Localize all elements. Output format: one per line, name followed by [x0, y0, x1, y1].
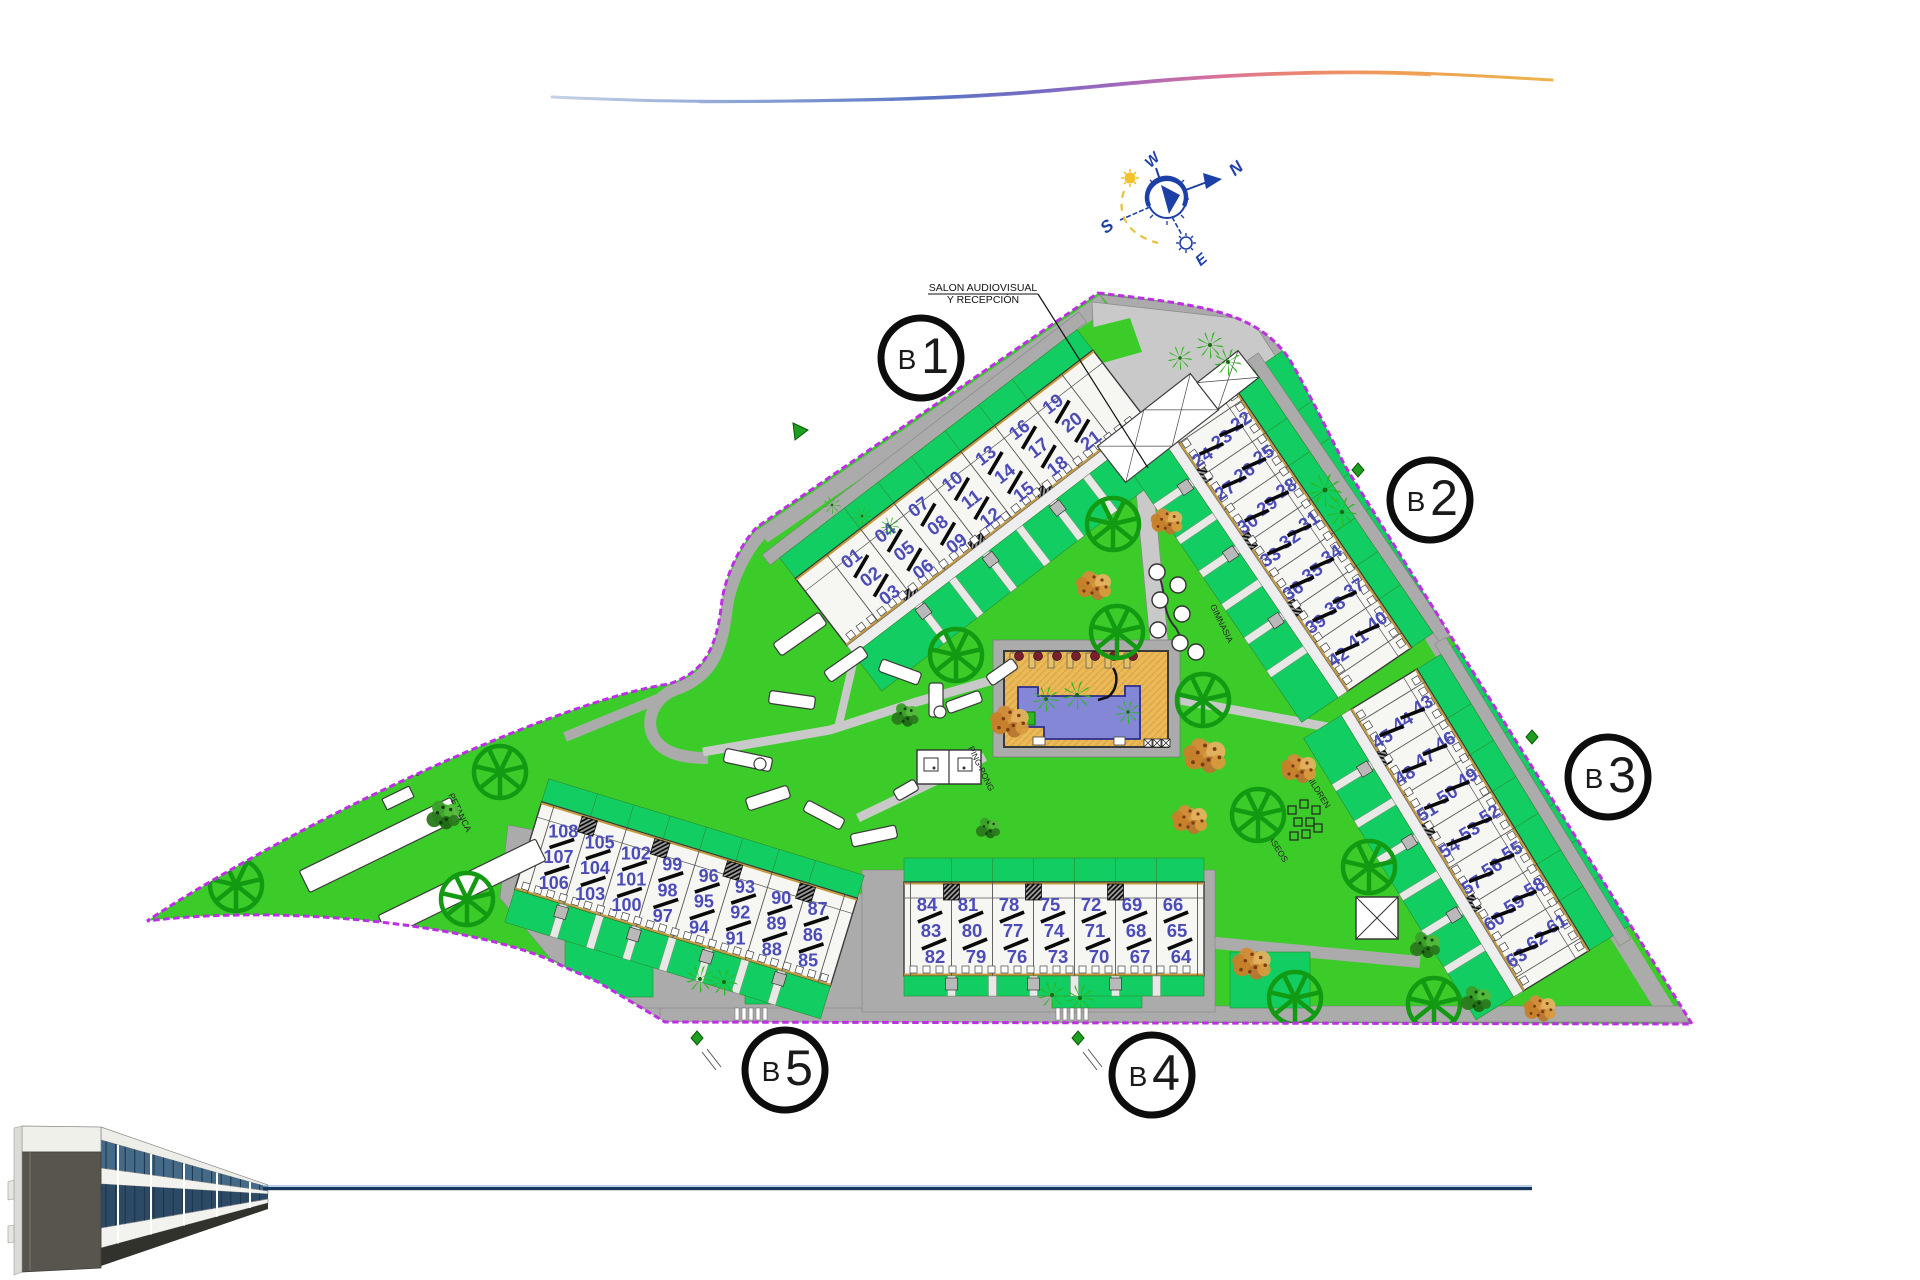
- svg-text:87: 87: [808, 899, 828, 919]
- svg-text:76: 76: [1007, 946, 1028, 967]
- svg-text:107: 107: [543, 847, 573, 867]
- svg-text:65: 65: [1167, 920, 1188, 941]
- svg-text:89: 89: [767, 914, 787, 934]
- svg-text:72: 72: [1081, 894, 1102, 915]
- svg-text:101: 101: [616, 869, 646, 889]
- svg-text:80: 80: [962, 920, 983, 941]
- svg-text:75: 75: [1040, 894, 1061, 915]
- svg-text:97: 97: [653, 906, 673, 926]
- svg-text:103: 103: [575, 884, 605, 904]
- svg-text:1: 1: [921, 328, 949, 384]
- svg-text:95: 95: [694, 892, 714, 912]
- svg-text:84: 84: [917, 894, 938, 915]
- svg-text:70: 70: [1089, 946, 1110, 967]
- svg-text:104: 104: [580, 858, 610, 878]
- svg-text:100: 100: [611, 895, 641, 915]
- svg-text:73: 73: [1048, 946, 1069, 967]
- svg-text:81: 81: [958, 894, 979, 915]
- svg-text:4: 4: [1152, 1045, 1180, 1101]
- svg-text:Y RECEPCIÓN: Y RECEPCIÓN: [947, 293, 1019, 306]
- svg-text:99: 99: [662, 855, 682, 875]
- svg-text:79: 79: [966, 946, 987, 967]
- svg-text:B: B: [1585, 763, 1604, 794]
- svg-text:90: 90: [771, 888, 791, 908]
- svg-text:B: B: [1407, 486, 1426, 517]
- svg-text:77: 77: [1003, 920, 1024, 941]
- svg-text:67: 67: [1130, 946, 1151, 967]
- svg-text:74: 74: [1044, 920, 1065, 941]
- svg-text:98: 98: [658, 880, 678, 900]
- svg-text:68: 68: [1126, 920, 1147, 941]
- svg-text:B: B: [898, 344, 917, 375]
- svg-text:3: 3: [1608, 747, 1636, 803]
- svg-text:SALON AUDIOVISUAL: SALON AUDIOVISUAL: [929, 282, 1038, 294]
- svg-text:88: 88: [762, 939, 782, 959]
- svg-text:93: 93: [735, 877, 755, 897]
- svg-text:96: 96: [699, 866, 719, 886]
- svg-text:78: 78: [999, 894, 1020, 915]
- svg-text:94: 94: [689, 917, 709, 937]
- svg-text:5: 5: [785, 1040, 813, 1096]
- svg-text:B: B: [762, 1056, 781, 1087]
- svg-text:86: 86: [803, 925, 823, 945]
- svg-text:82: 82: [925, 946, 946, 967]
- svg-text:91: 91: [725, 928, 745, 948]
- svg-text:64: 64: [1171, 946, 1192, 967]
- svg-text:69: 69: [1122, 894, 1143, 915]
- svg-text:83: 83: [921, 920, 942, 941]
- svg-text:B: B: [1129, 1061, 1148, 1092]
- svg-text:71: 71: [1085, 920, 1106, 941]
- svg-text:66: 66: [1163, 894, 1184, 915]
- svg-text:92: 92: [730, 903, 750, 923]
- svg-text:85: 85: [798, 951, 818, 971]
- svg-text:2: 2: [1430, 470, 1458, 526]
- svg-text:106: 106: [539, 873, 569, 893]
